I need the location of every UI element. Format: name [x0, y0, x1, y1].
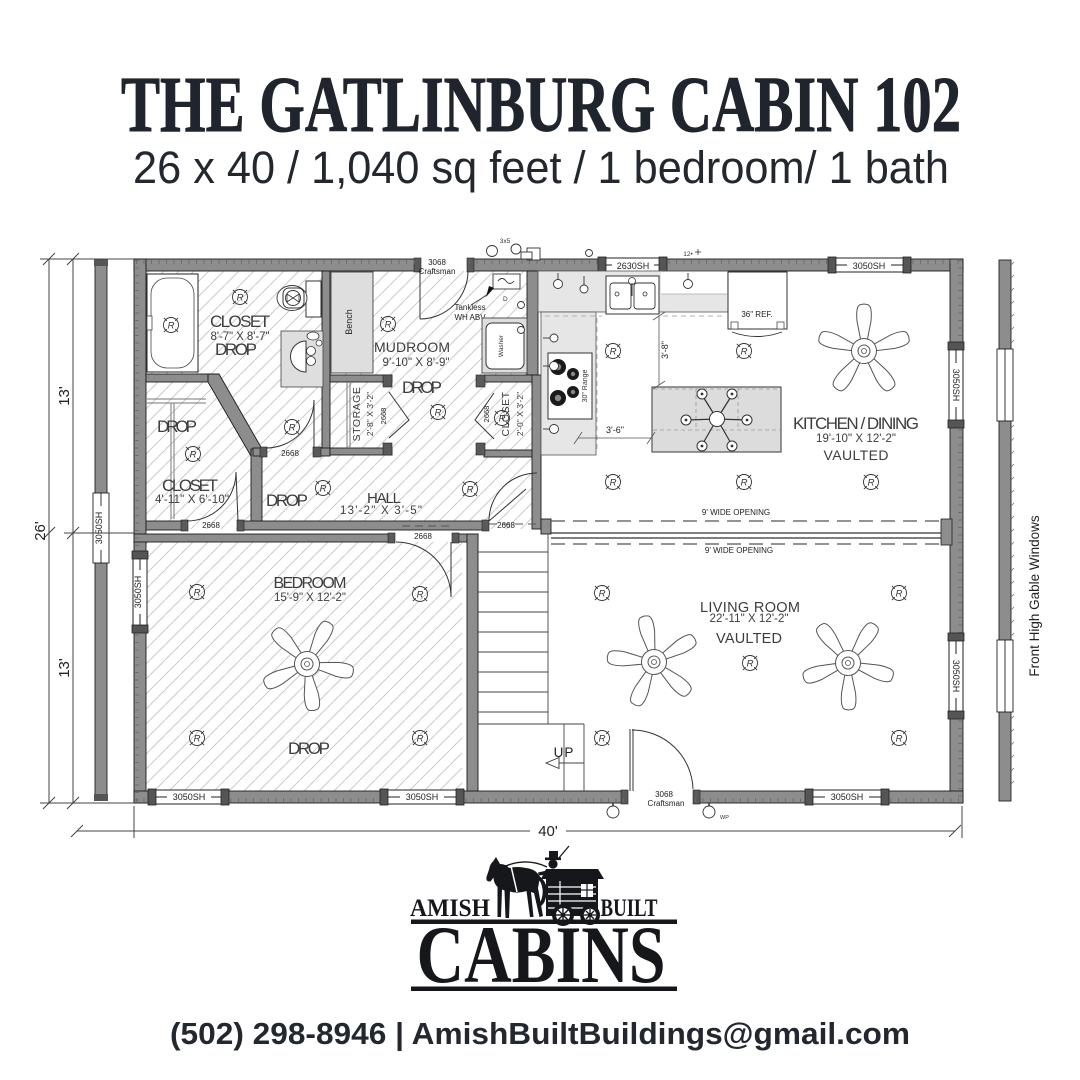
svg-text:15'-9" X 12'-2": 15'-9" X 12'-2": [274, 592, 346, 604]
svg-text:CLOSET: CLOSET: [210, 312, 270, 331]
svg-text:4'-11" X 6'-10": 4'-11" X 6'-10": [155, 494, 229, 506]
svg-text:13': 13': [56, 658, 73, 678]
svg-text:9' WIDE OPENING: 9' WIDE OPENING: [705, 546, 773, 555]
svg-text:13'-2" X 3'-5": 13'-2" X 3'-5": [340, 505, 422, 517]
svg-text:9' WIDE OPENING: 9' WIDE OPENING: [702, 508, 770, 517]
svg-text:3068: 3068: [655, 790, 673, 799]
svg-text:THE GATLINBURG CABIN 102: THE GATLINBURG CABIN 102: [121, 60, 961, 148]
svg-text:19'-10" X 12'-2": 19'-10" X 12'-2": [816, 433, 896, 445]
svg-text:D: D: [503, 296, 508, 303]
svg-text:26': 26': [32, 521, 49, 541]
svg-text:STORAGE: STORAGE: [351, 387, 363, 442]
svg-text:13': 13': [56, 386, 73, 406]
svg-text:DROP: DROP: [215, 340, 257, 359]
svg-text:CABINS: CABINS: [417, 909, 666, 1000]
svg-text:22'-11" X 12'-2": 22'-11" X 12'-2": [710, 613, 789, 625]
svg-text:VAULTED: VAULTED: [824, 447, 889, 463]
svg-text:MUDROOM: MUDROOM: [374, 339, 450, 355]
svg-text:40': 40': [538, 823, 558, 840]
svg-text:3068: 3068: [428, 258, 446, 267]
svg-text:Tankless: Tankless: [454, 303, 485, 312]
svg-text:2'-0" X 3'-2": 2'-0" X 3'-2": [515, 392, 525, 436]
svg-text:VAULTED: VAULTED: [716, 631, 782, 647]
svg-text:2668: 2668: [497, 521, 515, 530]
svg-text:3050SH: 3050SH: [831, 792, 864, 802]
svg-text:DROP: DROP: [402, 378, 442, 397]
svg-text:3'-6": 3'-6": [606, 425, 624, 435]
svg-text:Front High Gable Windows: Front High Gable Windows: [1027, 515, 1042, 677]
svg-text:2'-8" X 3'-2": 2'-8" X 3'-2": [365, 392, 375, 436]
svg-text:Washer: Washer: [498, 334, 505, 357]
svg-text:3050SH: 3050SH: [406, 792, 439, 802]
svg-text:KITCHEN / DINING: KITCHEN / DINING: [793, 414, 919, 433]
svg-text:3050SH: 3050SH: [951, 369, 961, 402]
svg-text:(502) 298-8946 | AmishBuiltB: (502) 298-8946 | AmishBuiltBuildings@gma…: [170, 1016, 910, 1051]
svg-text:DROP: DROP: [288, 739, 330, 758]
svg-text:3050SH: 3050SH: [94, 512, 104, 545]
svg-text:3050SH: 3050SH: [133, 576, 143, 609]
svg-text:WH ABV: WH ABV: [454, 313, 486, 322]
svg-text:30" Range: 30" Range: [582, 369, 589, 402]
svg-text:WP: WP: [720, 815, 729, 821]
svg-text:Craftsman: Craftsman: [419, 267, 456, 276]
svg-text:BEDROOM: BEDROOM: [274, 575, 347, 592]
svg-text:2668: 2668: [414, 532, 432, 541]
svg-text:3'-8": 3'-8": [660, 341, 670, 359]
svg-text:2668: 2668: [482, 406, 491, 423]
svg-text:3x5: 3x5: [500, 238, 511, 245]
svg-text:3050SH: 3050SH: [173, 792, 206, 802]
svg-text:2668: 2668: [379, 408, 388, 425]
svg-text:36" REF.: 36" REF.: [741, 310, 772, 319]
svg-text:DROP: DROP: [266, 491, 308, 510]
svg-text:26 x 40 / 1,040 sq feet / 1 be: 26 x 40 / 1,040 sq feet / 1 bedroom/ 1 b…: [133, 142, 949, 193]
svg-text:9'-10" X 8'-9": 9'-10" X 8'-9": [383, 357, 450, 369]
svg-text:12•: 12•: [683, 251, 693, 258]
svg-text:3050SH: 3050SH: [951, 660, 961, 693]
svg-text:2630SH: 2630SH: [617, 261, 650, 271]
svg-text:3050SH: 3050SH: [853, 261, 886, 271]
svg-text:UP: UP: [554, 745, 575, 760]
svg-text:CLOSET: CLOSET: [162, 476, 218, 495]
svg-text:2668: 2668: [281, 449, 299, 458]
svg-text:Craftsman: Craftsman: [648, 799, 685, 808]
svg-text:DROP: DROP: [157, 417, 197, 436]
svg-text:Bench: Bench: [344, 309, 354, 335]
svg-text:2668: 2668: [202, 521, 220, 530]
